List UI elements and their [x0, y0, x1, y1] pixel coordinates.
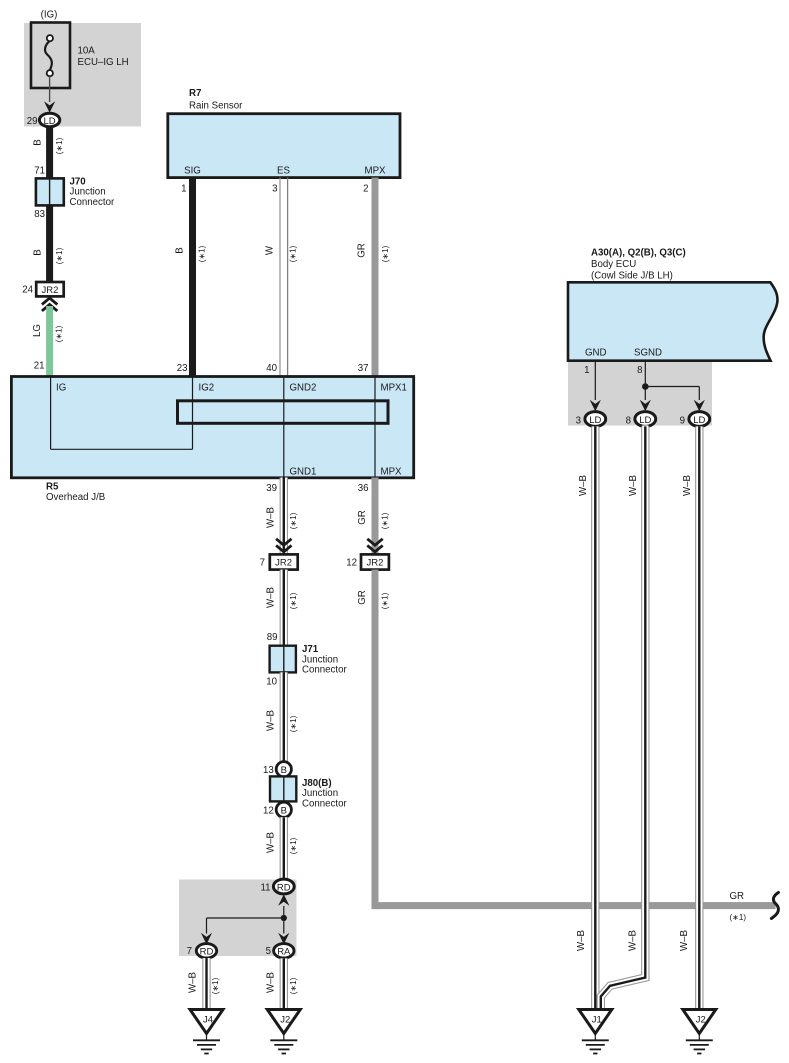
svg-text:(∗1): (∗1)	[289, 592, 298, 609]
svg-text:LD: LD	[639, 415, 651, 426]
svg-text:(∗1): (∗1)	[381, 245, 390, 262]
svg-text:(∗1): (∗1)	[55, 325, 64, 342]
svg-text:MPX: MPX	[381, 467, 403, 478]
svg-text:(IG): (IG)	[41, 10, 58, 21]
svg-text:SGND: SGND	[634, 348, 662, 359]
svg-text:Body ECU: Body ECU	[591, 259, 636, 270]
svg-text:7: 7	[260, 558, 265, 569]
svg-text:ECU–IG LH: ECU–IG LH	[78, 57, 129, 68]
svg-text:9: 9	[680, 416, 685, 427]
svg-text:24: 24	[22, 285, 33, 296]
svg-text:IG: IG	[56, 383, 66, 394]
svg-text:(∗1): (∗1)	[211, 977, 220, 994]
svg-text:(∗1): (∗1)	[198, 245, 207, 262]
svg-text:11: 11	[260, 883, 270, 894]
svg-text:W–B: W–B	[682, 475, 693, 496]
svg-text:J4: J4	[203, 1015, 213, 1026]
svg-text:GR: GR	[729, 891, 744, 902]
svg-text:RD: RD	[277, 882, 291, 893]
svg-text:LD: LD	[589, 415, 601, 426]
svg-text:21: 21	[34, 361, 45, 372]
svg-text:Connector: Connector	[302, 665, 347, 676]
svg-text:JR2: JR2	[42, 285, 59, 296]
svg-text:12: 12	[346, 558, 357, 569]
svg-text:GND: GND	[585, 348, 607, 359]
svg-text:B: B	[281, 765, 287, 776]
svg-text:B: B	[175, 247, 186, 253]
svg-text:W–B: W–B	[188, 972, 199, 993]
svg-text:7: 7	[187, 946, 192, 957]
svg-text:LG: LG	[32, 324, 43, 337]
svg-text:MPX1: MPX1	[381, 383, 407, 394]
svg-text:J1: J1	[592, 1015, 602, 1026]
svg-text:(Cowl Side J/B LH): (Cowl Side J/B LH)	[591, 271, 673, 282]
svg-text:W–B: W–B	[576, 930, 587, 951]
svg-text:(∗1): (∗1)	[730, 913, 747, 922]
svg-text:83: 83	[34, 209, 45, 220]
svg-text:40: 40	[266, 363, 277, 374]
svg-text:13: 13	[263, 765, 274, 776]
svg-text:RA: RA	[277, 947, 291, 958]
svg-text:3: 3	[272, 184, 277, 195]
svg-text:W: W	[265, 245, 276, 255]
svg-text:LD: LD	[693, 415, 705, 426]
svg-text:W–B: W–B	[266, 587, 277, 608]
svg-text:(∗1): (∗1)	[381, 592, 390, 609]
svg-text:W–B: W–B	[679, 930, 690, 951]
svg-text:GR: GR	[357, 243, 368, 258]
svg-text:1: 1	[584, 365, 589, 376]
svg-text:W–B: W–B	[578, 475, 589, 496]
svg-text:12: 12	[263, 806, 274, 817]
svg-text:37: 37	[358, 363, 369, 374]
svg-text:J2: J2	[696, 1015, 706, 1026]
svg-text:GND1: GND1	[290, 467, 317, 478]
svg-text:8: 8	[637, 365, 642, 376]
svg-text:8: 8	[626, 416, 631, 427]
svg-text:B: B	[33, 249, 44, 255]
svg-text:JR2: JR2	[275, 558, 292, 569]
svg-text:23: 23	[177, 363, 188, 374]
svg-text:A30(A), Q2(B), Q3(C): A30(A), Q2(B), Q3(C)	[591, 248, 686, 259]
svg-text:W–B: W–B	[628, 930, 639, 951]
svg-text:JR2: JR2	[367, 558, 384, 569]
svg-text:3: 3	[576, 416, 581, 427]
svg-text:Connector: Connector	[70, 197, 115, 208]
svg-text:(∗1): (∗1)	[381, 512, 390, 529]
svg-text:39: 39	[266, 483, 277, 494]
svg-text:(∗1): (∗1)	[289, 837, 298, 854]
svg-text:J2: J2	[280, 1015, 290, 1026]
svg-text:R7: R7	[189, 88, 201, 99]
svg-text:1: 1	[181, 184, 186, 195]
svg-text:(∗1): (∗1)	[55, 247, 64, 264]
svg-text:GR: GR	[357, 590, 368, 605]
svg-text:(∗1): (∗1)	[289, 512, 298, 529]
svg-text:GND2: GND2	[290, 383, 317, 394]
svg-text:29: 29	[27, 116, 38, 127]
svg-text:IG2: IG2	[199, 383, 215, 394]
svg-text:W–B: W–B	[266, 710, 277, 731]
svg-text:10: 10	[266, 677, 277, 688]
svg-text:W–B: W–B	[266, 972, 277, 993]
svg-text:(∗1): (∗1)	[289, 977, 298, 994]
svg-text:B: B	[281, 806, 287, 817]
svg-text:MPX: MPX	[365, 166, 387, 177]
svg-text:(∗1): (∗1)	[55, 137, 64, 154]
svg-text:LD: LD	[44, 116, 56, 127]
svg-text:10A: 10A	[78, 46, 96, 57]
svg-text:SIG: SIG	[184, 166, 201, 177]
svg-text:W–B: W–B	[266, 507, 277, 528]
svg-text:ES: ES	[277, 166, 290, 177]
svg-text:W–B: W–B	[628, 475, 639, 496]
svg-text:89: 89	[267, 632, 278, 643]
svg-text:Connector: Connector	[302, 798, 347, 809]
svg-text:Overhead J/B: Overhead J/B	[46, 492, 105, 503]
svg-text:(∗1): (∗1)	[289, 715, 298, 732]
svg-text:W–B: W–B	[266, 832, 277, 853]
svg-text:5: 5	[266, 946, 271, 957]
svg-text:GR: GR	[357, 510, 368, 525]
svg-text:Rain Sensor: Rain Sensor	[189, 101, 243, 112]
svg-text:B: B	[33, 139, 44, 145]
svg-text:36: 36	[358, 483, 369, 494]
svg-text:(∗1): (∗1)	[289, 245, 298, 262]
svg-text:2: 2	[363, 184, 368, 195]
svg-text:71: 71	[34, 166, 45, 177]
svg-text:RD: RD	[200, 947, 214, 958]
